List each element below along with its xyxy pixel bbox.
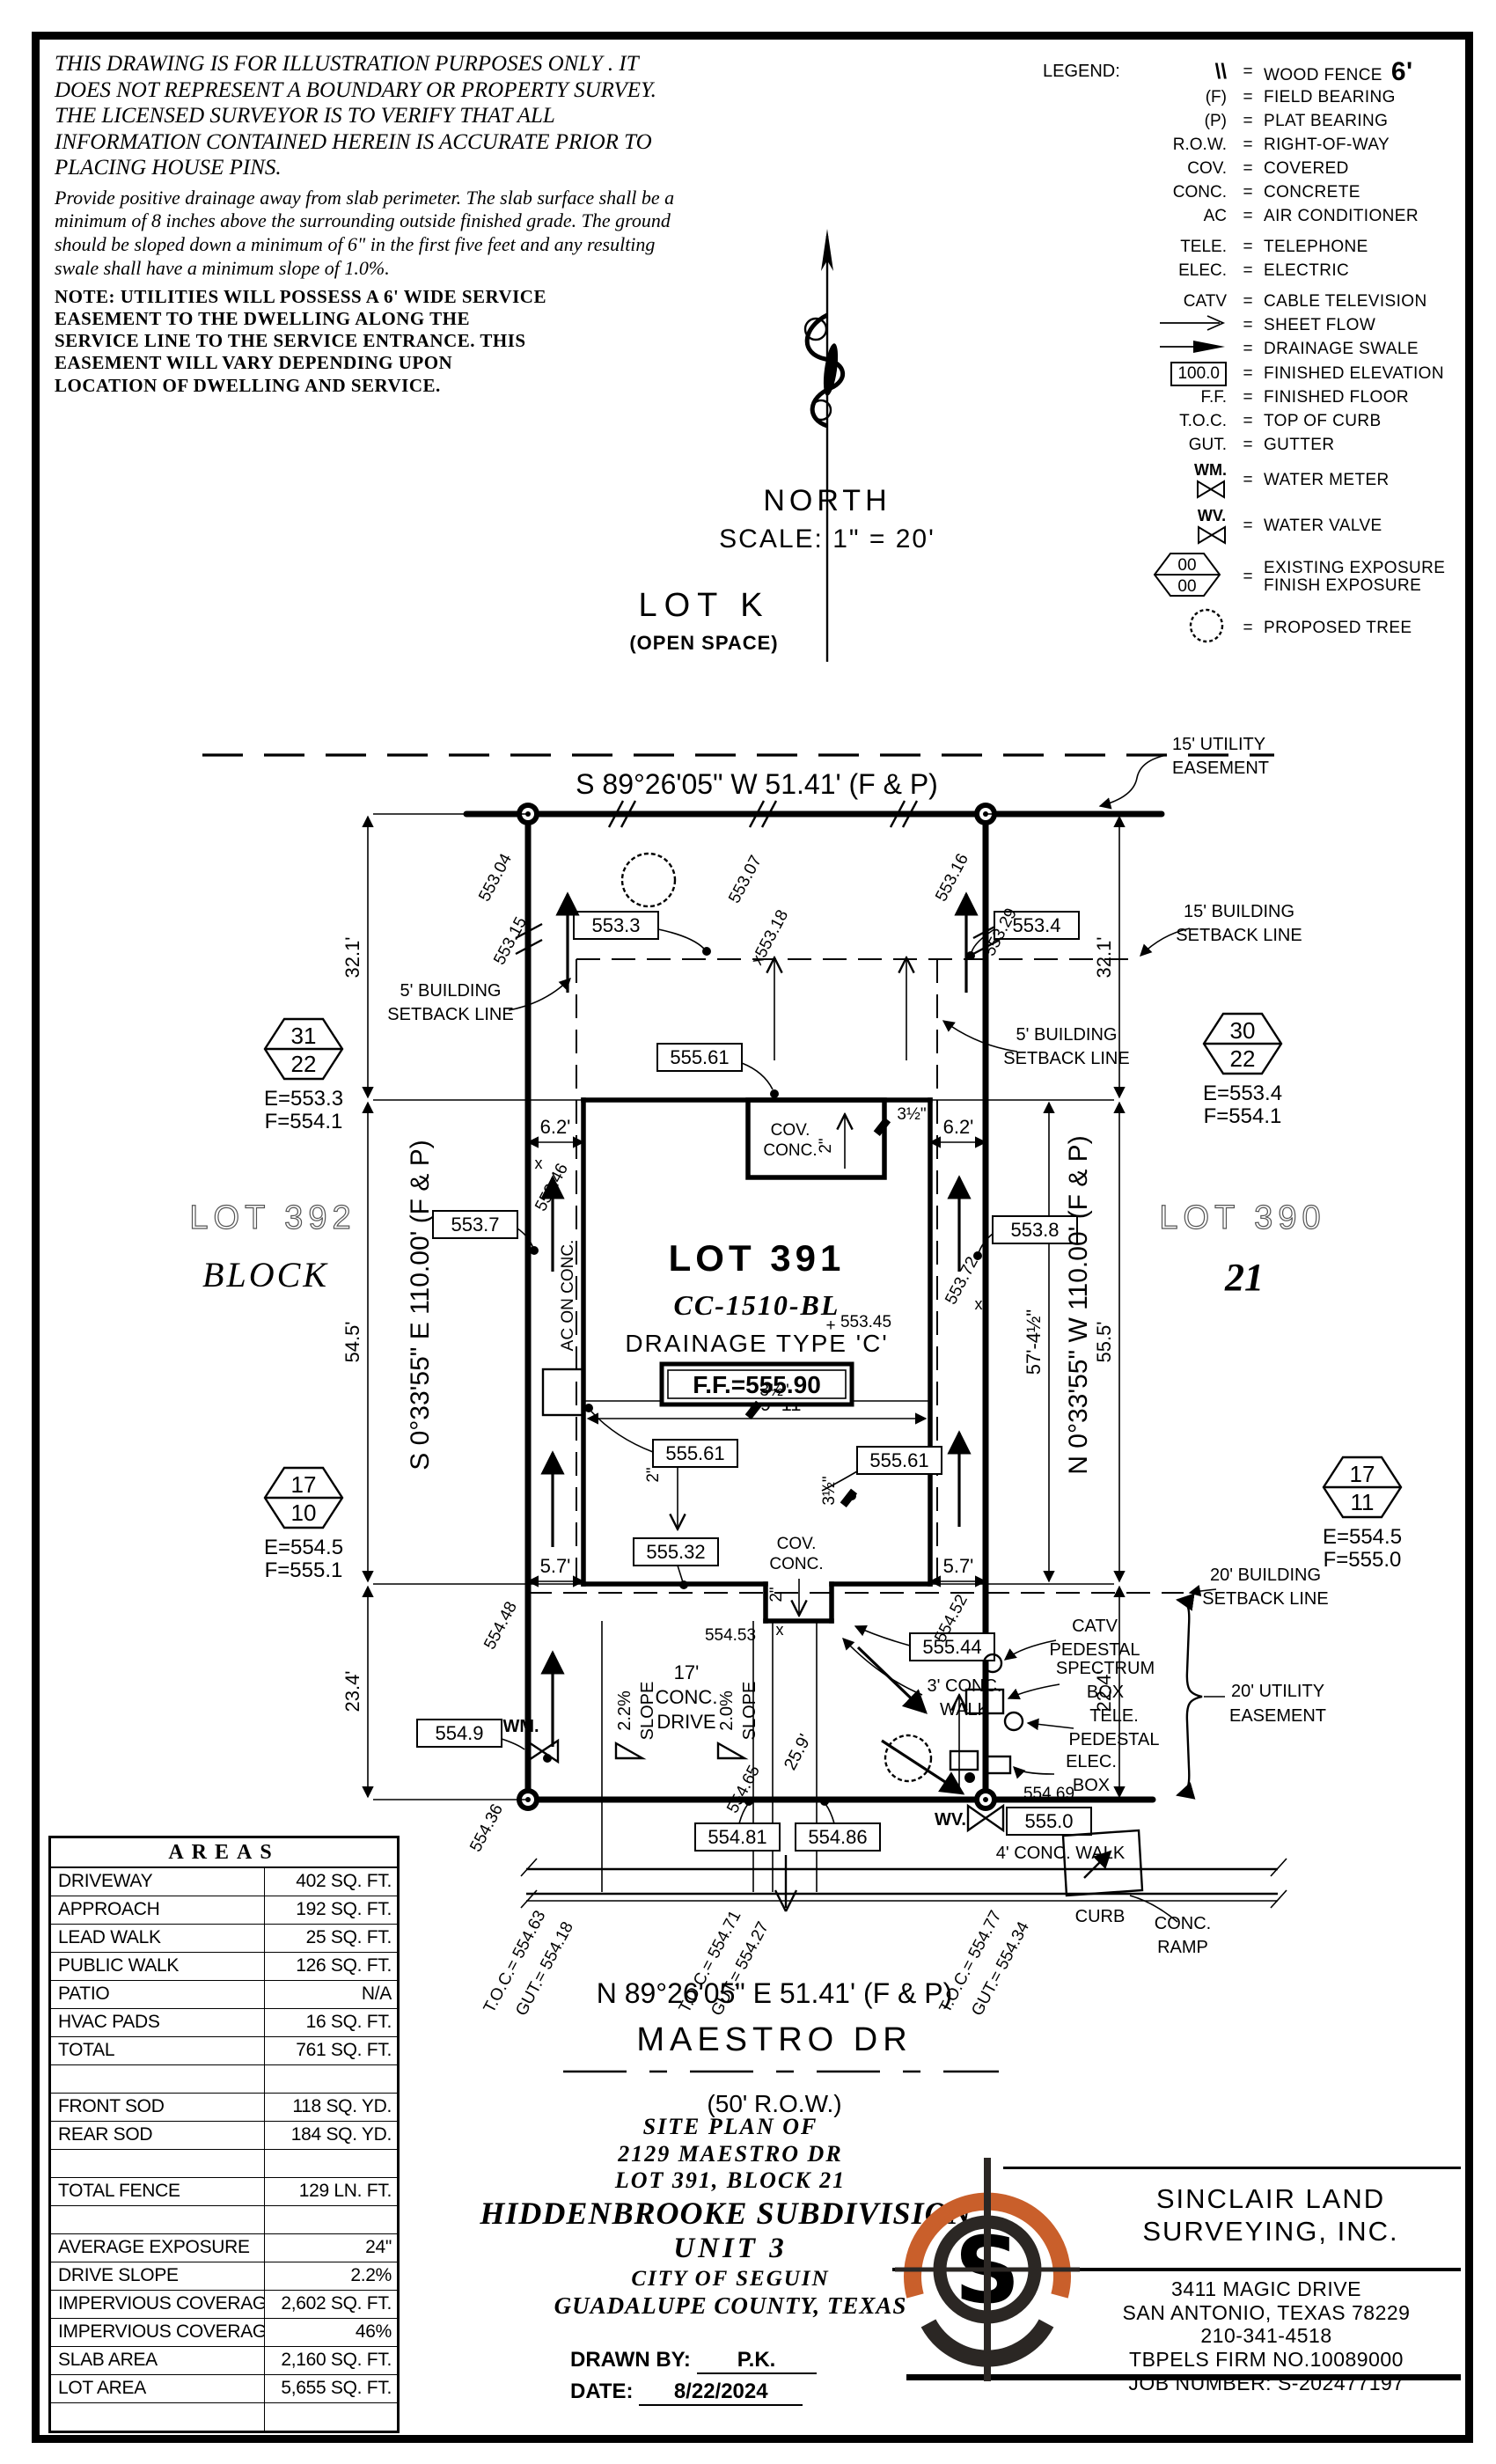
drainage-type-label: DRAINAGE TYPE 'C'	[625, 1330, 888, 1357]
svg-text:553.3: 553.3	[591, 914, 640, 936]
tele-pedestal	[1005, 1712, 1023, 1730]
utility-easement-15-callout: 15' UTILITY EASEMENT	[1100, 735, 1269, 806]
svg-text:553.8: 553.8	[1010, 1219, 1059, 1241]
company-phone: 210-341-4518	[1077, 2324, 1456, 2348]
table-row: TOTAL761 SQ. FT.	[51, 2037, 397, 2065]
svg-text:F=555.1: F=555.1	[265, 1558, 343, 1582]
street-name: MAESTRO DR	[636, 2021, 912, 2058]
svg-text:2.2%: 2.2%	[615, 1690, 634, 1731]
svg-text:RAMP: RAMP	[1157, 1938, 1208, 1957]
svg-text:CONC.: CONC.	[656, 1686, 718, 1708]
svg-text:x: x	[975, 1295, 983, 1313]
table-row: APPROACH192 SQ. FT.	[51, 1896, 397, 1925]
table-row: FRONT SOD118 SQ. YD.	[51, 2094, 397, 2122]
bearing-south-line: N 89°26'05" E 51.41' (F & P)	[597, 1977, 953, 2009]
svg-text:54.5': 54.5'	[341, 1321, 363, 1362]
svg-text:15' UTILITY: 15' UTILITY	[1172, 735, 1265, 754]
title-line: SITE PLAN OF	[440, 2114, 1021, 2141]
svg-text:17': 17'	[674, 1661, 700, 1683]
svg-text:20' UTILITY: 20' UTILITY	[1231, 1682, 1324, 1701]
svg-text:555.0: 555.0	[1024, 1810, 1073, 1832]
svg-text:4' CONC. WALK: 4' CONC. WALK	[996, 1844, 1126, 1863]
svg-text:SETBACK LINE: SETBACK LINE	[1003, 1049, 1129, 1068]
svg-text:554.9: 554.9	[435, 1722, 483, 1744]
company-address-1: 3411 MAGIC DRIVE	[1077, 2277, 1456, 2301]
lot-391-label: LOT 391	[669, 1237, 846, 1279]
svg-text:BOX: BOX	[1087, 1683, 1124, 1702]
block-label: BLOCK	[202, 1255, 329, 1294]
svg-text:23.4': 23.4'	[341, 1670, 363, 1712]
elevation-553.8: 553.8	[973, 1216, 1077, 1260]
house-footprint	[543, 1100, 930, 1621]
svg-text:SLOPE: SLOPE	[740, 1682, 759, 1741]
svg-text:BOX: BOX	[1073, 1776, 1110, 1795]
exposure-31-22: 3122E=553.3F=554.1	[264, 1019, 343, 1133]
exposure-17-10: 1710E=554.5F=555.1	[264, 1468, 343, 1582]
drawn-by-label: DRAWN BY:	[570, 2348, 691, 2372]
table-row: DRIVEWAY402 SQ. FT.	[51, 1868, 397, 1896]
svg-text:3½": 3½"	[759, 1382, 788, 1400]
svg-text:SETBACK LINE: SETBACK LINE	[1176, 926, 1302, 945]
company-name-1: SINCLAIR LAND	[1156, 2183, 1385, 2214]
date-label: DATE:	[570, 2380, 634, 2403]
open-space-sub-label: (OPEN SPACE)	[629, 632, 778, 654]
svg-text:x: x	[776, 1621, 784, 1639]
svg-text:F=554.1: F=554.1	[1204, 1104, 1282, 1128]
date-value: 8/22/2024	[639, 2380, 803, 2406]
svg-text:17: 17	[291, 1471, 317, 1498]
ac-pad	[543, 1369, 583, 1415]
elevation-555.61-a: 555.61	[657, 1044, 779, 1098]
table-row: AVERAGE EXPOSURE24"	[51, 2234, 397, 2262]
company-job-number: JOB NUMBER: S-202477197	[1077, 2372, 1456, 2395]
finished-floor-label: F.F.=555.90	[693, 1371, 821, 1398]
svg-text:31: 31	[291, 1023, 317, 1049]
svg-text:x: x	[535, 1155, 543, 1172]
lot-390-label: LOT 390	[1159, 1199, 1325, 1236]
svg-text:2": 2"	[817, 1138, 835, 1153]
table-row: LEAD WALK25 SQ. FT.	[51, 1925, 397, 1953]
svg-text:15' BUILDING: 15' BUILDING	[1184, 902, 1294, 921]
svg-text:E=553.3: E=553.3	[264, 1087, 343, 1111]
svg-text:PEDESTAL: PEDESTAL	[1069, 1730, 1160, 1749]
ff-spot: 553.45	[840, 1313, 891, 1331]
svg-text:32.1': 32.1'	[341, 936, 363, 978]
svg-text:55.5': 55.5'	[1093, 1321, 1115, 1362]
svg-text:554.48: 554.48	[480, 1599, 521, 1653]
bearing-west-line: S 0°33'55" E 110.00' (F & P)	[406, 1140, 435, 1470]
block-21-label: 21	[1224, 1256, 1264, 1299]
svg-text:57'-4½": 57'-4½"	[1023, 1309, 1045, 1375]
svg-text:E=553.4: E=553.4	[1203, 1082, 1282, 1105]
svg-text:555.44: 555.44	[922, 1636, 981, 1658]
table-row	[51, 2065, 397, 2094]
svg-text:SLOPE: SLOPE	[638, 1682, 657, 1741]
svg-text:554.86: 554.86	[808, 1826, 867, 1848]
svg-text:22: 22	[291, 1051, 317, 1077]
elevation-555.61-b: 555.61	[584, 1404, 737, 1467]
bearing-east-line: N 0°33'55" W 110.00' (F & P)	[1064, 1135, 1093, 1474]
svg-text:SETBACK LINE: SETBACK LINE	[387, 1005, 513, 1024]
company-address-2: SAN ANTONIO, TEXAS 78229	[1077, 2301, 1456, 2325]
table-row: REAR SOD184 SQ. YD.	[51, 2122, 397, 2150]
svg-text:3½": 3½"	[897, 1105, 926, 1124]
svg-text:WALK: WALK	[940, 1700, 990, 1720]
svg-text:CURB: CURB	[1075, 1907, 1126, 1926]
svg-text:25.9': 25.9'	[781, 1731, 815, 1773]
drawn-by-value: P.K.	[697, 2348, 817, 2374]
house-labels: COV. CONC. 2" 3½" LOT 391 CC-1510-BL + 5…	[559, 1105, 927, 1614]
exposure-17-11: 1711E=554.5F=555.0	[1323, 1457, 1402, 1572]
table-row: IMPERVIOUS COVERAGE %46%	[51, 2319, 397, 2347]
svg-text:2.0%: 2.0%	[717, 1690, 737, 1731]
svg-text:TELE.: TELE.	[1089, 1706, 1139, 1726]
drawn-by-block: DRAWN BY: P.K. DATE: 8/22/2024	[570, 2348, 817, 2406]
scale-label: SCALE: 1" = 20'	[719, 524, 935, 554]
svg-text:SETBACK LINE: SETBACK LINE	[1202, 1589, 1328, 1609]
elec-box-1	[950, 1751, 978, 1770]
svg-text:SPECTRUM: SPECTRUM	[1056, 1659, 1155, 1678]
table-row: PUBLIC WALK126 SQ. FT.	[51, 1953, 397, 1981]
svg-text:553.7: 553.7	[451, 1214, 499, 1236]
svg-text:30: 30	[1230, 1017, 1256, 1044]
svg-text:6.2': 6.2'	[540, 1116, 571, 1138]
svg-text:2": 2"	[767, 1587, 786, 1602]
elevation-553.7: 553.7	[433, 1211, 539, 1255]
svg-text:20' BUILDING: 20' BUILDING	[1210, 1566, 1321, 1585]
svg-text:554.36: 554.36	[466, 1801, 507, 1855]
svg-text:555.61: 555.61	[665, 1442, 724, 1464]
svg-text:F=555.0: F=555.0	[1324, 1548, 1402, 1572]
svg-text:WM.: WM.	[502, 1717, 539, 1736]
svg-text:5' BUILDING: 5' BUILDING	[400, 981, 502, 1001]
svg-text:11: 11	[1351, 1489, 1375, 1515]
svg-text:5.7': 5.7'	[540, 1555, 571, 1577]
svg-text:553.04: 553.04	[475, 850, 516, 905]
svg-text:2": 2"	[644, 1467, 663, 1482]
elevation-555.44: 555.44	[855, 1626, 994, 1661]
table-row: PATION/A	[51, 1981, 397, 2009]
svg-text:CONC.: CONC.	[1155, 1914, 1211, 1933]
svg-text:3' CONC.: 3' CONC.	[928, 1676, 1002, 1696]
areas-title: AREAS	[51, 1838, 397, 1868]
company-firm-no: TBPELS FIRM NO.10089000	[1077, 2348, 1456, 2372]
bearing-north-line: S 89°26'05" W 51.41' (F & P)	[576, 768, 938, 800]
svg-text:E=554.5: E=554.5	[1323, 1525, 1402, 1549]
svg-text:DRIVE: DRIVE	[656, 1711, 715, 1733]
table-row: HVAC PADS16 SQ. FT.	[51, 2009, 397, 2037]
open-space-lot-label: LOT K	[638, 587, 769, 624]
sheet: THIS DRAWING IS FOR ILLUSTRATION PURPOSE…	[0, 0, 1496, 2464]
elevation-553.3: 553.3	[574, 912, 711, 956]
lot-392-label: LOT 392	[189, 1199, 356, 1236]
svg-text:F=554.1: F=554.1	[265, 1110, 343, 1133]
svg-text:553.15: 553.15	[490, 914, 531, 968]
svg-text:5' BUILDING: 5' BUILDING	[1016, 1025, 1118, 1045]
svg-text:32.1': 32.1'	[1093, 936, 1115, 978]
model-label: CC-1510-BL	[674, 1289, 840, 1321]
water-valve: WV. 555.0	[935, 1806, 1091, 1835]
svg-text:554.53: 554.53	[705, 1626, 756, 1645]
elevation-554.86: 554.86	[796, 1797, 880, 1851]
table-row: LOT AREA5,655 SQ. FT.	[51, 2375, 397, 2403]
north-label: NORTH	[763, 484, 891, 517]
table-row: DRIVE SLOPE2.2%	[51, 2262, 397, 2291]
svg-text:554.65: 554.65	[723, 1763, 764, 1816]
company-logo: S	[895, 2151, 1080, 2388]
svg-text:5.7': 5.7'	[943, 1555, 974, 1577]
table-row	[51, 2403, 397, 2431]
table-row	[51, 2206, 397, 2234]
svg-text:PEDESTAL: PEDESTAL	[1050, 1640, 1140, 1660]
svg-text:553.07: 553.07	[725, 853, 766, 906]
svg-text:555.61: 555.61	[869, 1449, 928, 1471]
svg-text:553.4: 553.4	[1012, 914, 1060, 936]
table-row: SLAB AREA2,160 SQ. FT.	[51, 2347, 397, 2375]
svg-text:10: 10	[291, 1500, 317, 1526]
north-arrow-icon	[805, 229, 843, 662]
svg-text:E=554.5: E=554.5	[264, 1536, 343, 1559]
svg-text:COV.: COV.	[771, 1121, 810, 1140]
elevation-555.61-c: 555.61	[822, 1447, 942, 1500]
svg-text:6.2': 6.2'	[943, 1116, 974, 1138]
svg-text:CONC.: CONC.	[769, 1555, 823, 1573]
table-row: TOTAL FENCE129 LN. FT.	[51, 2178, 397, 2206]
svg-text:554.81: 554.81	[708, 1826, 766, 1848]
svg-text:CATV: CATV	[1072, 1617, 1118, 1636]
exposure-30-22: 3022E=553.4F=554.1	[1203, 1014, 1282, 1128]
svg-text:555.61: 555.61	[670, 1046, 729, 1068]
svg-text:EASEMENT: EASEMENT	[1172, 759, 1269, 778]
svg-text:WV.: WV.	[935, 1810, 966, 1830]
svg-text:22: 22	[1230, 1045, 1256, 1072]
areas-table: AREAS DRIVEWAY402 SQ. FT. APPROACH192 SQ…	[48, 1836, 400, 2433]
svg-text:ELEC.: ELEC.	[1066, 1752, 1117, 1771]
svg-text:17: 17	[1350, 1461, 1375, 1487]
water-meter: WM. 554.9	[417, 1717, 558, 1763]
ac-on-conc-label: AC ON CONC.	[559, 1240, 577, 1352]
svg-text:CONC.: CONC.	[763, 1141, 817, 1160]
svg-text:COV.: COV.	[777, 1535, 817, 1553]
svg-text:EASEMENT: EASEMENT	[1229, 1706, 1326, 1726]
company-name-2: SURVEYING, INC.	[1142, 2216, 1398, 2247]
svg-text:555.32: 555.32	[646, 1541, 705, 1563]
street-section: 554.81 554.86 4' CONC. WALK CURB CONC.RA…	[480, 1797, 1287, 2117]
table-row: IMPERVIOUS COVERAGE2,602 SQ. FT.	[51, 2291, 397, 2319]
svg-text:554.69: 554.69	[1023, 1785, 1074, 1803]
table-row	[51, 2150, 397, 2178]
